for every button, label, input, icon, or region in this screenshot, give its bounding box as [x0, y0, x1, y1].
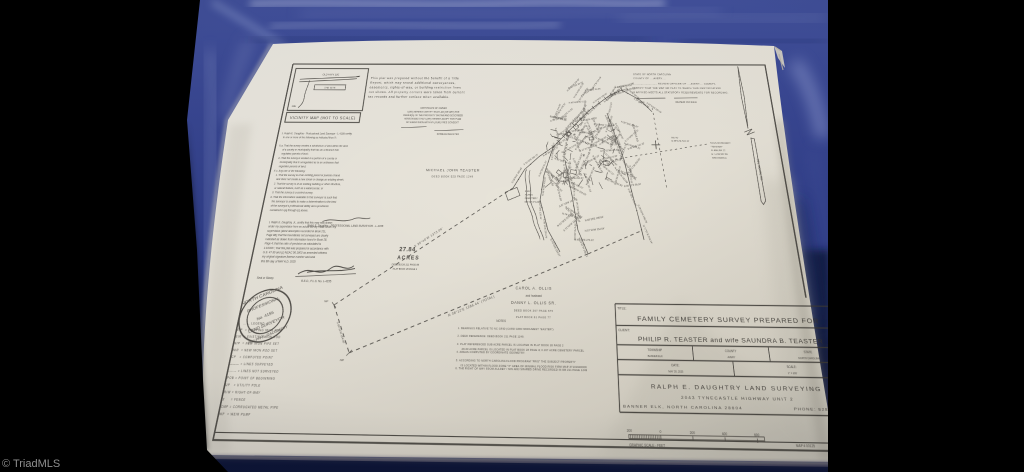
svg-text:© TriadMLS: © TriadMLS	[2, 458, 60, 470]
